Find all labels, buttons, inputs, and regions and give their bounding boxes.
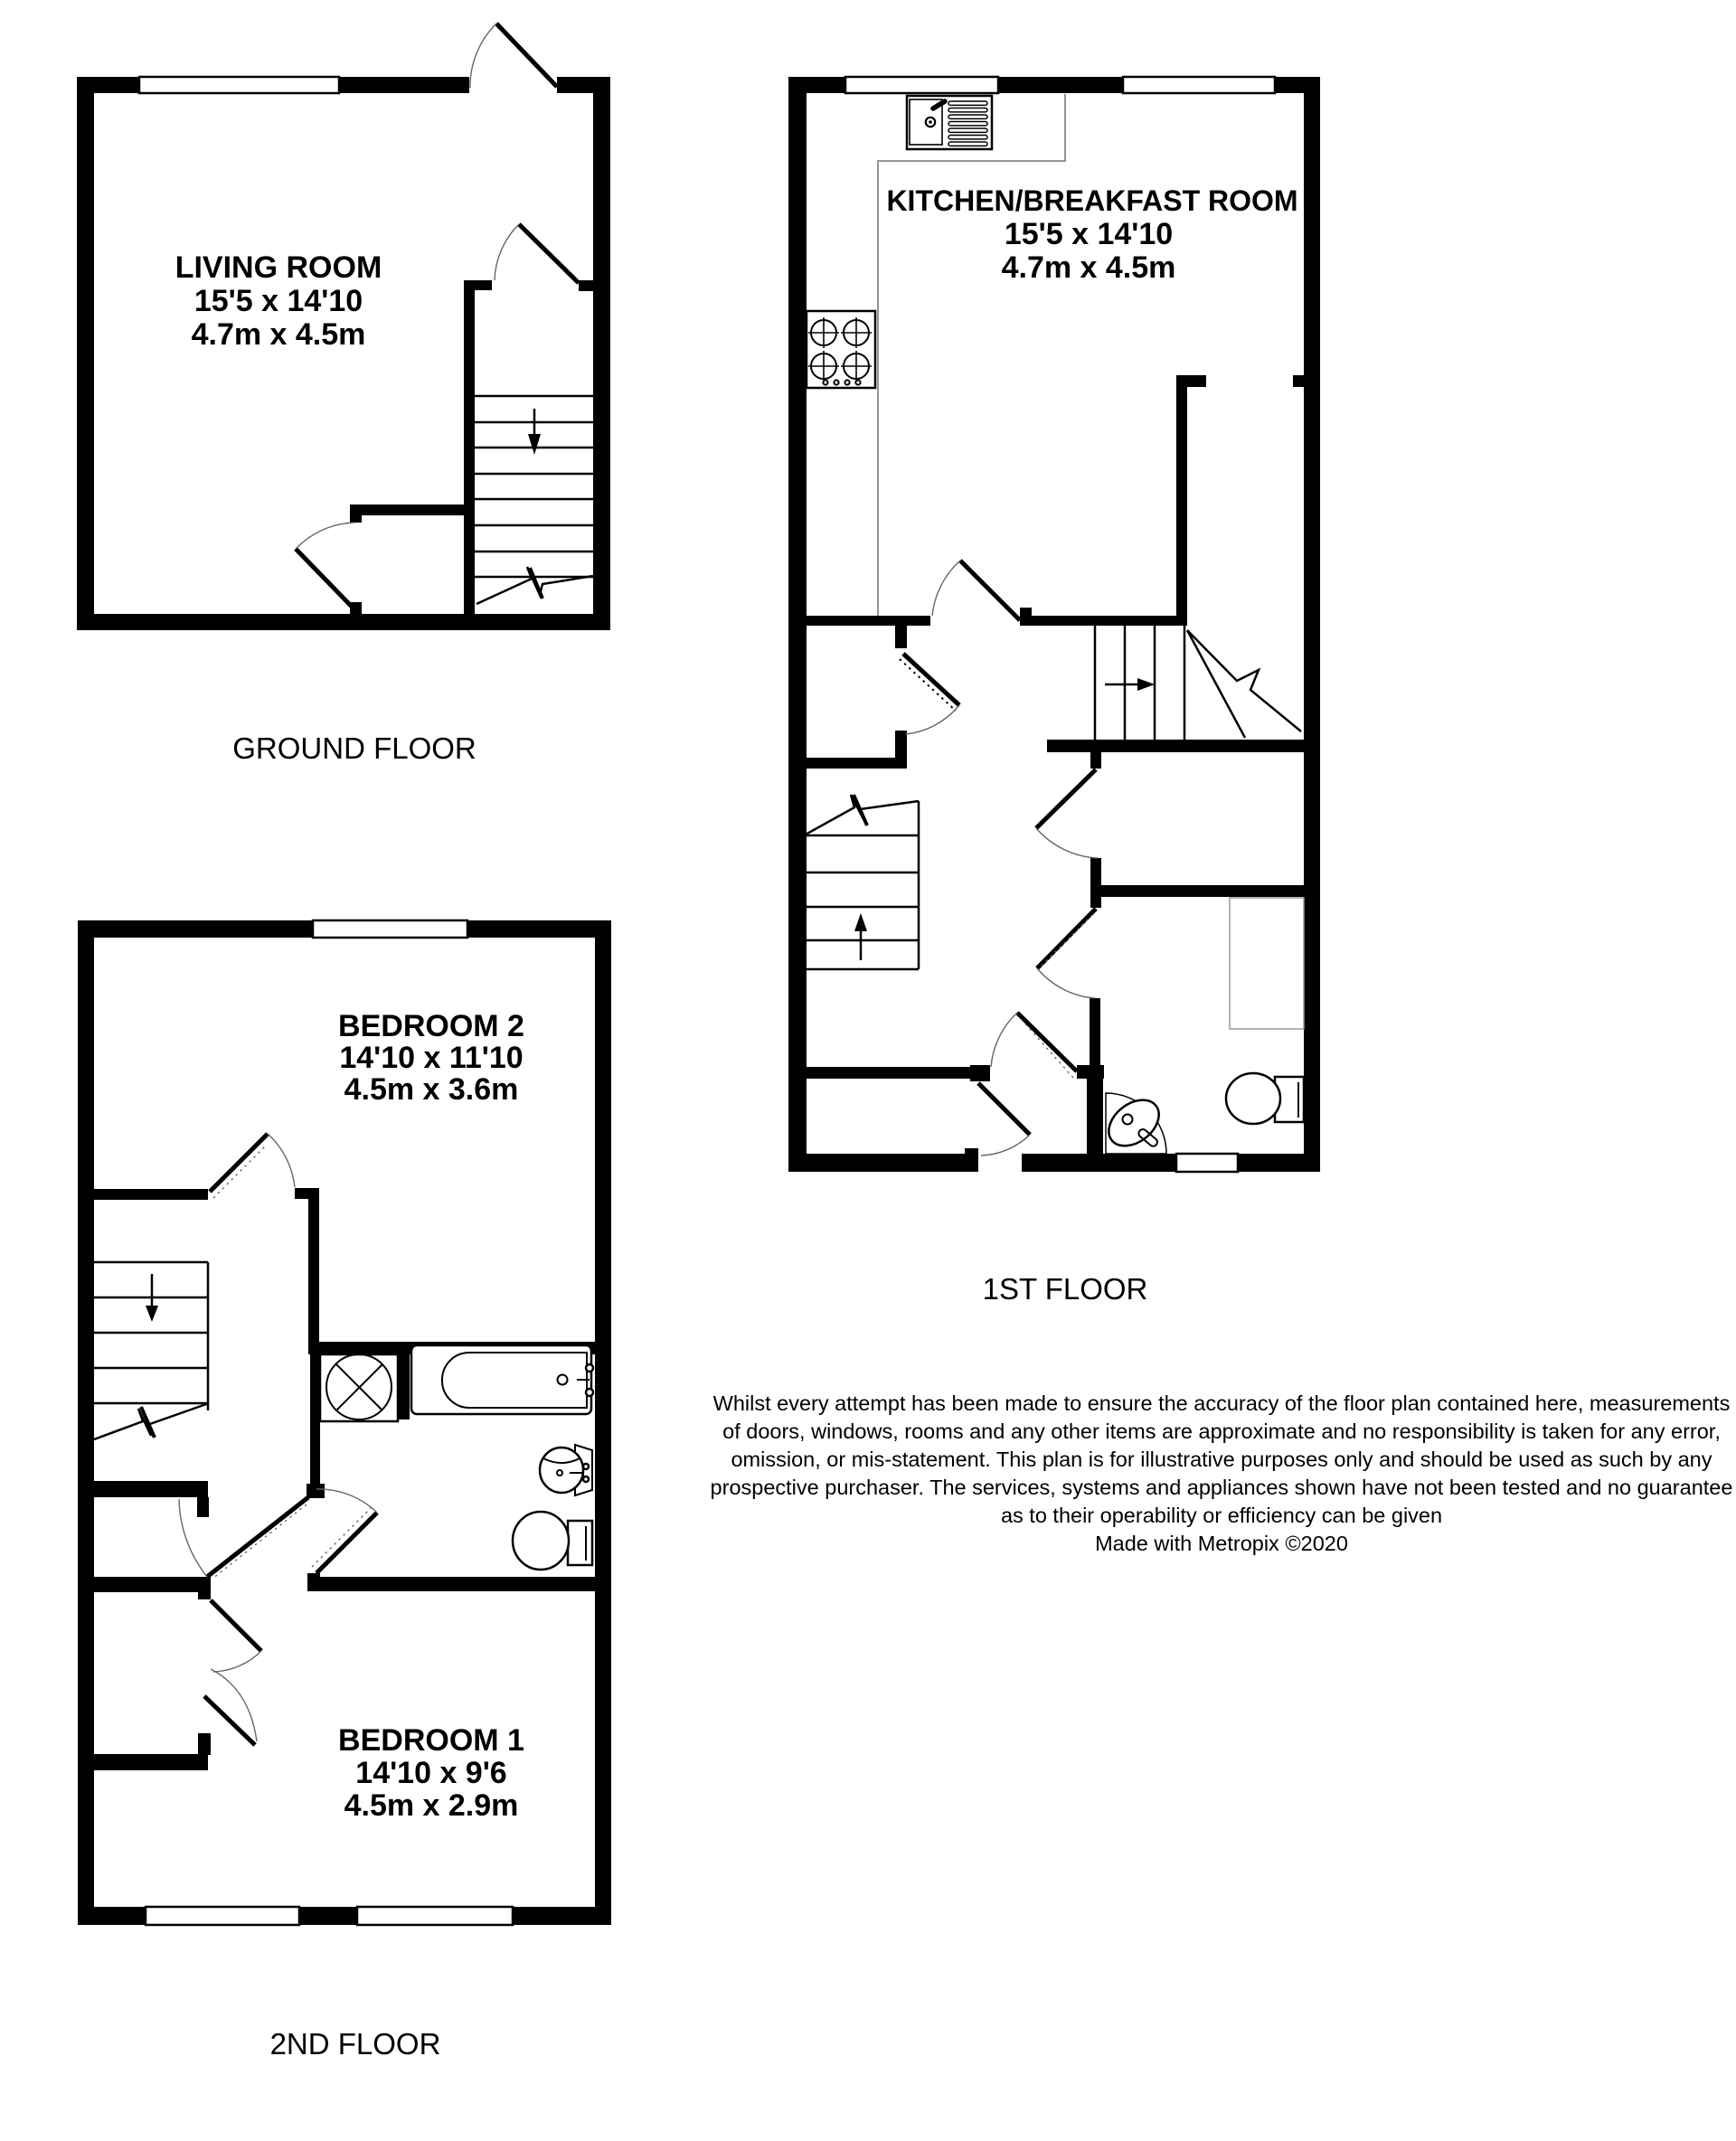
svg-text:GROUND FLOOR: GROUND FLOOR <box>232 731 476 765</box>
svg-text:Made with Metropix ©2020: Made with Metropix ©2020 <box>1095 1532 1348 1555</box>
svg-text:BEDROOM 2: BEDROOM 2 <box>338 1009 524 1043</box>
svg-text:Whilst every attempt has been: Whilst every attempt has been made to en… <box>713 1391 1731 1415</box>
svg-text:14'10 x 9'6: 14'10 x 9'6 <box>355 1756 506 1790</box>
svg-text:4.7m x 4.5m: 4.7m x 4.5m <box>192 317 366 352</box>
svg-text:4.5m x 3.6m: 4.5m x 3.6m <box>344 1072 519 1107</box>
svg-text:KITCHEN/BREAKFAST ROOM: KITCHEN/BREAKFAST ROOM <box>886 184 1297 217</box>
svg-text:prospective purchaser. The ser: prospective purchaser. The services, sys… <box>711 1476 1733 1499</box>
svg-text:4.7m x 4.5m: 4.7m x 4.5m <box>1002 250 1176 285</box>
svg-text:omission, or mis-statement. Th: omission, or mis-statement. This plan is… <box>731 1448 1712 1471</box>
svg-text:BEDROOM 1: BEDROOM 1 <box>338 1723 524 1758</box>
svg-text:as to their operability or eff: as to their operability or efficiency ca… <box>1001 1504 1442 1527</box>
svg-text:2ND FLOOR: 2ND FLOOR <box>270 2027 441 2061</box>
svg-text:14'10 x 11'10: 14'10 x 11'10 <box>339 1041 523 1075</box>
svg-text:1ST FLOOR: 1ST FLOOR <box>983 1272 1148 1306</box>
svg-text:LIVING ROOM: LIVING ROOM <box>175 250 382 285</box>
svg-text:15'5 x 14'10: 15'5 x 14'10 <box>1005 217 1173 251</box>
svg-text:of doors, windows, rooms and a: of doors, windows, rooms and any other i… <box>722 1419 1721 1443</box>
svg-text:15'5 x 14'10: 15'5 x 14'10 <box>194 284 363 318</box>
svg-text:4.5m x 2.9m: 4.5m x 2.9m <box>344 1788 519 1823</box>
